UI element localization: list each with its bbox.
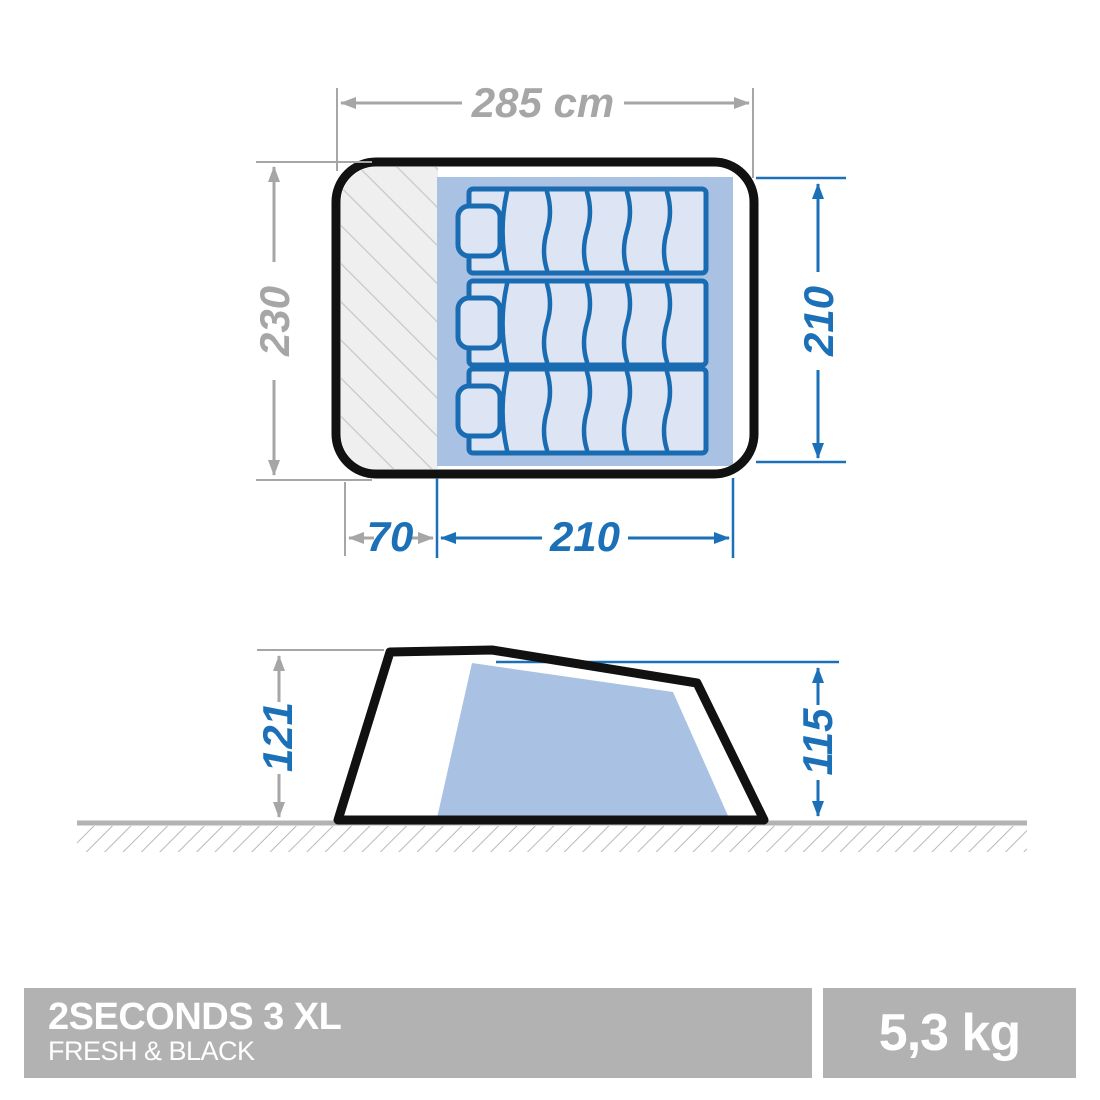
outer-depth-label: 230	[251, 286, 298, 357]
vestibule-depth-label: 70	[367, 513, 414, 560]
ground-hatch	[77, 826, 1027, 852]
vestibule-hatched-area	[341, 167, 438, 469]
sleeping-pad-1	[458, 189, 706, 273]
weight-banner: 5,3 kg	[823, 988, 1076, 1078]
product-weight: 5,3 kg	[879, 1003, 1020, 1063]
sleeping-pad-3	[458, 369, 706, 453]
dimension-bedroom-width: 210	[437, 478, 733, 560]
side-view	[77, 650, 1027, 852]
product-collection: FRESH & BLACK	[48, 1036, 812, 1067]
product-name: 2SECONDS 3 XL	[48, 998, 812, 1036]
inner-height-label: 115	[794, 708, 841, 776]
dimension-bedroom-length: 210	[756, 178, 846, 462]
bedroom-length-label: 210	[795, 286, 842, 357]
dimension-vestibule-depth: 70	[345, 482, 433, 560]
outer-height-label: 121	[254, 702, 301, 772]
dimension-inner-height: 115	[794, 668, 841, 816]
bedroom-width-label: 210	[549, 513, 620, 560]
product-banner: 2SECONDS 3 XL FRESH & BLACK	[24, 988, 812, 1078]
tent-dimension-diagram: 285 cm 230 210 70 210	[0, 0, 1100, 1100]
outer-width-label: 285 cm	[471, 79, 614, 126]
top-view	[336, 162, 754, 474]
sleeping-pad-2	[458, 281, 706, 365]
